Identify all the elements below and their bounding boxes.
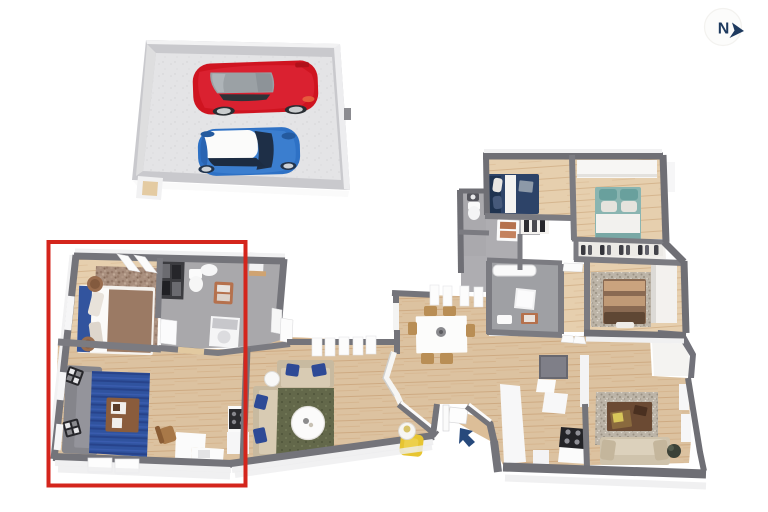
svg-text:N: N: [718, 21, 730, 38]
